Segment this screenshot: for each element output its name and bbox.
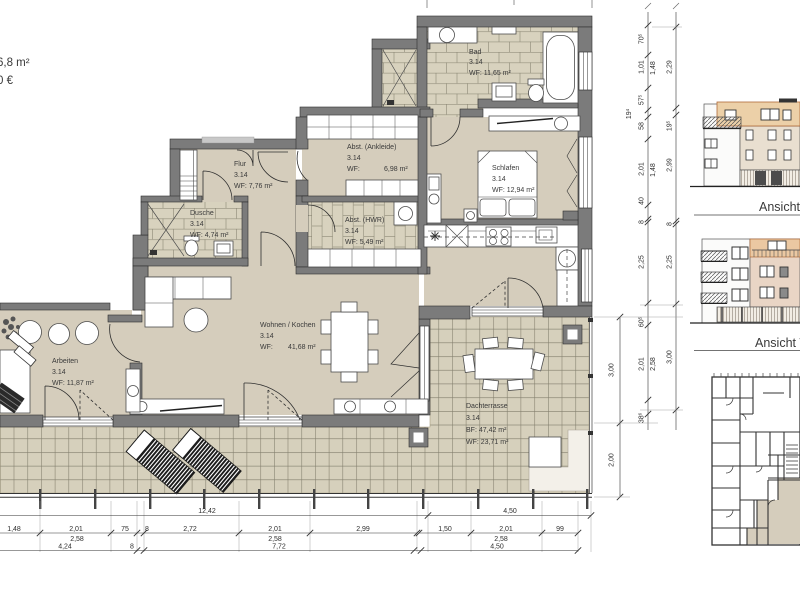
- svg-text:12,42: 12,42: [198, 508, 216, 515]
- svg-text:1,48: 1,48: [7, 526, 21, 533]
- svg-text:2,72: 2,72: [183, 526, 197, 533]
- svg-text:2,25: 2,25: [667, 255, 674, 269]
- svg-text:4,50: 4,50: [490, 544, 504, 551]
- svg-text:2,01: 2,01: [268, 526, 282, 533]
- svg-text:2,29: 2,29: [667, 60, 674, 74]
- svg-text:8: 8: [130, 544, 134, 551]
- svg-text:3.14: 3.14: [345, 228, 359, 235]
- svg-text:1,48: 1,48: [650, 163, 657, 177]
- svg-text:Bad: Bad: [469, 49, 482, 56]
- svg-text:WF: 7,76 m²: WF: 7,76 m²: [234, 183, 273, 190]
- svg-text:2,01: 2,01: [639, 357, 646, 371]
- svg-text:3.14: 3.14: [466, 415, 480, 422]
- svg-text:Arbeiten: Arbeiten: [52, 358, 78, 365]
- svg-text:99: 99: [556, 526, 564, 533]
- svg-text:3.14: 3.14: [260, 333, 274, 340]
- svg-text:Abst. (HWR): Abst. (HWR): [345, 217, 384, 224]
- svg-text:3,00: 3,00: [667, 350, 674, 364]
- svg-text:Abst. (Ankleide): Abst. (Ankleide): [347, 144, 396, 151]
- svg-text:2,99: 2,99: [667, 158, 674, 172]
- svg-text:3.14: 3.14: [190, 221, 204, 228]
- svg-text:3.14: 3.14: [52, 369, 66, 376]
- svg-text:Dachterrasse: Dachterrasse: [466, 403, 508, 410]
- svg-text:WF: 5,49 m²: WF: 5,49 m²: [345, 239, 384, 246]
- svg-text:6,98 m²: 6,98 m²: [384, 166, 408, 173]
- svg-text:2,01: 2,01: [499, 526, 513, 533]
- svg-text:WF: 23,71 m²: WF: 23,71 m²: [466, 439, 509, 446]
- svg-text:2,00: 2,00: [609, 453, 616, 467]
- svg-text:6,8 m²: 6,8 m²: [0, 57, 30, 69]
- svg-text:2,58: 2,58: [494, 536, 508, 543]
- svg-text:2,58: 2,58: [268, 536, 282, 543]
- svg-text:0 €: 0 €: [0, 75, 14, 87]
- svg-text:Schlafen: Schlafen: [492, 165, 519, 172]
- svg-text:8: 8: [145, 526, 149, 533]
- svg-text:3,00: 3,00: [609, 363, 616, 377]
- svg-text:WF:: WF:: [347, 166, 360, 173]
- svg-text:WF: 11,87 m²: WF: 11,87 m²: [52, 380, 95, 387]
- svg-text:3.14: 3.14: [347, 155, 361, 162]
- svg-text:41,68 m²: 41,68 m²: [288, 344, 316, 351]
- svg-text:Wohnen / Kochen: Wohnen / Kochen: [260, 322, 316, 329]
- svg-text:58: 58: [639, 122, 646, 130]
- svg-text:Flur: Flur: [234, 161, 247, 168]
- svg-text:1,01: 1,01: [639, 60, 646, 74]
- svg-text:3.14: 3.14: [492, 176, 506, 183]
- svg-text:2,58: 2,58: [70, 536, 84, 543]
- svg-text:Ansicht: Ansicht: [759, 200, 800, 214]
- svg-text:75: 75: [121, 526, 129, 533]
- svg-text:2,01: 2,01: [69, 526, 83, 533]
- svg-text:Dusche: Dusche: [190, 210, 214, 217]
- svg-text:4,24: 4,24: [58, 544, 72, 551]
- svg-text:WF: 11,65 m²: WF: 11,65 m²: [469, 70, 512, 77]
- svg-text:3.14: 3.14: [234, 172, 248, 179]
- svg-text:7,72: 7,72: [272, 544, 286, 551]
- svg-text:8: 8: [667, 222, 674, 226]
- svg-text:3.14: 3.14: [469, 59, 483, 66]
- svg-text:WF:: WF:: [260, 344, 273, 351]
- svg-text:2,01: 2,01: [639, 162, 646, 176]
- svg-text:4,50: 4,50: [503, 508, 517, 515]
- svg-text:WF: 4,74 m²: WF: 4,74 m²: [190, 232, 229, 239]
- svg-text:Ansicht W: Ansicht W: [755, 336, 800, 350]
- svg-text:8: 8: [639, 220, 646, 224]
- svg-text:2,99: 2,99: [356, 526, 370, 533]
- svg-text:2,25: 2,25: [639, 255, 646, 269]
- svg-text:1,48: 1,48: [650, 61, 657, 75]
- svg-text:WF: 12,94 m²: WF: 12,94 m²: [492, 187, 535, 194]
- svg-text:1,50: 1,50: [438, 526, 452, 533]
- svg-text:2,58: 2,58: [650, 357, 657, 371]
- svg-text:40: 40: [639, 197, 646, 205]
- svg-text:BF: 47,42 m²: BF: 47,42 m²: [466, 427, 507, 434]
